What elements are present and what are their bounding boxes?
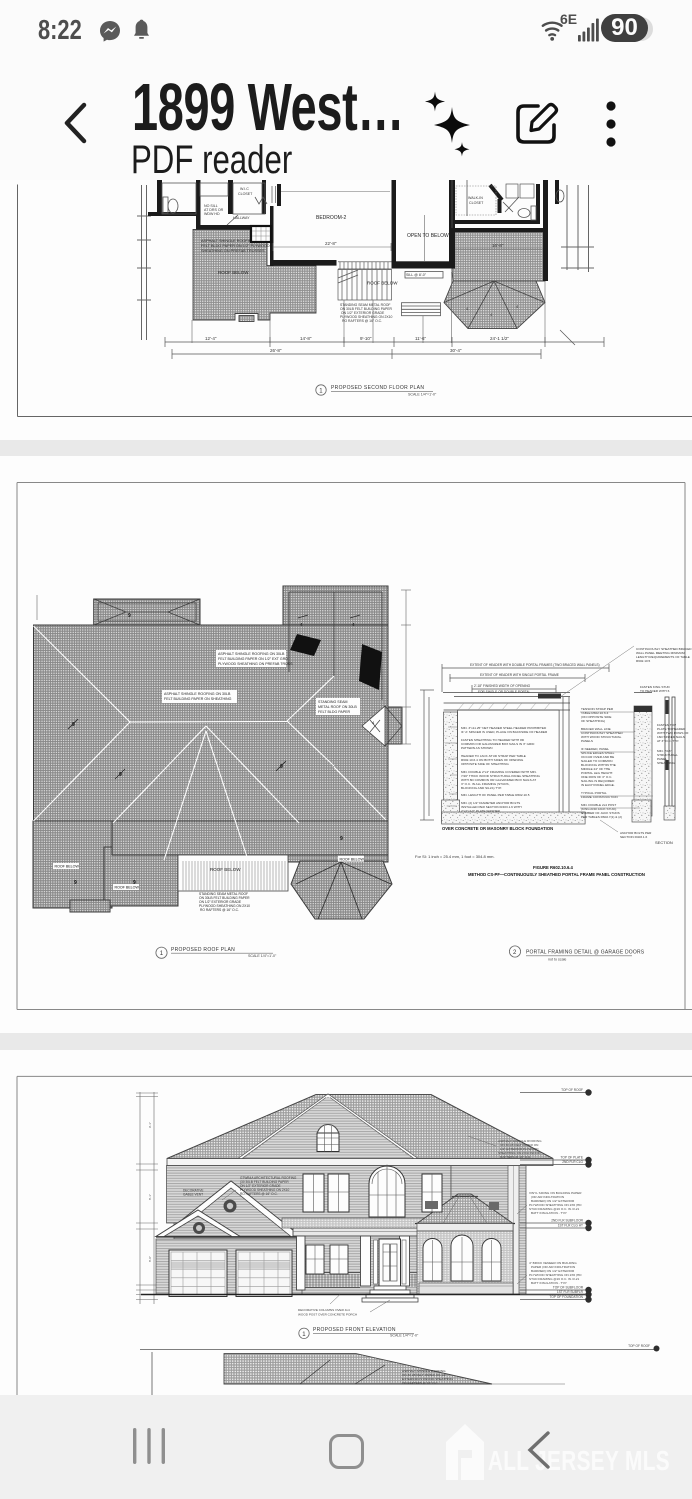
svg-text:9'-10": 9'-10" (360, 336, 372, 341)
svg-text:BATT INSULATION - TYP: BATT INSULATION - TYP (531, 1281, 567, 1285)
svg-text:FRAME CONSTRUCTION: FRAME CONSTRUCTION (581, 795, 618, 799)
svg-text:CLOSET: CLOSET (469, 201, 484, 205)
svg-text:IF 'A' SPACER IS USED, PLACE O: IF 'A' SPACER IS USED, PLACE ON BACKSIDE… (461, 730, 548, 734)
svg-text:9: 9 (133, 880, 136, 886)
svg-text:TOP OF ROOF: TOP OF ROOF (628, 1344, 650, 1348)
svg-text:PORTAL FRAMING DETAIL @ GARAGE: PORTAL FRAMING DETAIL @ GARAGE DOORS (526, 950, 645, 956)
svg-text:W.I.C: W.I.C (240, 187, 249, 191)
svg-text:FELT BLDG PAPER ON 1/2" PLYWOO: FELT BLDG PAPER ON 1/2" PLYWOOD (201, 244, 270, 248)
svg-text:14'-8": 14'-8" (300, 336, 312, 341)
svg-text:8'-1": 8'-1" (148, 1194, 152, 1200)
svg-text:WDW HD: WDW HD (204, 212, 220, 216)
svg-text:TOP OF SUBFLOOR: TOP OF SUBFLOOR (553, 1286, 584, 1290)
svg-text:ASPHALT SHINGLE ROOFING ON 30L: ASPHALT SHINGLE ROOFING ON 30LB (218, 652, 285, 656)
svg-text:AT 3" O.C. TYP.: AT 3" O.C. TYP. (657, 739, 679, 743)
svg-text:BEDROOM-2: BEDROOM-2 (316, 215, 347, 221)
svg-text:WALK-IN: WALK-IN (468, 196, 483, 200)
svg-text:METHOD CS-PF—CONTINUOUSLY SHEA: METHOD CS-PF—CONTINUOUSLY SHEATHED PORTA… (468, 872, 645, 877)
svg-text:9'-1": 9'-1" (148, 1122, 152, 1128)
svg-text:26'-8": 26'-8" (270, 348, 282, 353)
svg-text:R602.10.5: R602.10.5 (636, 659, 651, 663)
svg-text:SCALE 1/4"=1'-0": SCALE 1/4"=1'-0" (248, 954, 277, 958)
svg-text:PROPOSED FRONT ELEVATION: PROPOSED FRONT ELEVATION (313, 1327, 396, 1333)
svg-text:SECTION R403.1.6: SECTION R403.1.6 (620, 835, 647, 839)
svg-text:HALLWAY: HALLWAY (233, 216, 250, 220)
svg-text:12'-4": 12'-4" (205, 336, 217, 341)
svg-text:DECORATIVE COLUMNS OVER 4x4: DECORATIVE COLUMNS OVER 4x4 (298, 1308, 350, 1312)
svg-text:EXTENT OF HEADER WITH SINGLE P: EXTENT OF HEADER WITH SINGLE PORTAL FRAM… (480, 673, 559, 677)
svg-text:PER TABLES R602.7(1) & (2): PER TABLES R602.7(1) & (2) (581, 815, 622, 819)
svg-text:EXTENT OF HEADER WITH DOUBLE P: EXTENT OF HEADER WITH DOUBLE PORTAL FRAM… (470, 663, 600, 667)
svg-text:9: 9 (128, 613, 131, 619)
svg-text:OF SHEATHING): OF SHEATHING) (581, 719, 605, 723)
svg-text:MIN. LENGTH OF PANEL PER TABLE: MIN. LENGTH OF PANEL PER TABLE R602.10.5 (461, 793, 530, 797)
svg-text:2"x2"x1/2" PLATE WASHER: 2"x2"x1/2" PLATE WASHER (461, 809, 501, 813)
svg-text:RO RAFTERS @ 16" O.C.: RO RAFTERS @ 16" O.C. (200, 908, 239, 912)
svg-text:ROOF BELOW: ROOF BELOW (115, 886, 140, 890)
svg-text:SHEATHING ON PREFAB TRUSSES: SHEATHING ON PREFAB TRUSSES (201, 249, 265, 253)
svg-text:ROOF BELOW: ROOF BELOW (210, 867, 241, 872)
svg-text:OPEN TO BELOW: OPEN TO BELOW (407, 233, 449, 239)
svg-text:STANDING SEAM: STANDING SEAM (318, 700, 348, 704)
svg-text:PROPOSED SECOND FLOOR PLAN: PROPOSED SECOND FLOOR PLAN (331, 385, 424, 391)
svg-text:ROOF BELOW: ROOF BELOW (340, 858, 365, 862)
svg-text:1ST FLR CLG HT: 1ST FLR CLG HT (558, 1224, 583, 1228)
svg-text:1ST FLR SUBFLR: 1ST FLR SUBFLR (557, 1290, 584, 1294)
svg-text:SILL @ 8'-0": SILL @ 8'-0" (406, 273, 427, 277)
svg-text:PATTERN AS SHOWN: PATTERN AS SHOWN (461, 746, 493, 750)
svg-text:TO HEADER WITH 6: TO HEADER WITH 6 (640, 689, 670, 693)
svg-text:FIGURE R602.10.6.4: FIGURE R602.10.6.4 (533, 865, 573, 870)
svg-text:PANELS: PANELS (581, 739, 593, 743)
svg-text:BATT INSULATION - TYP: BATT INSULATION - TYP (531, 1211, 567, 1215)
svg-text:FOR SINGLE OR DOUBLE PORTAL: FOR SINGLE OR DOUBLE PORTAL (478, 690, 531, 694)
svg-text:8'-0": 8'-0" (148, 1256, 152, 1262)
svg-text:2: 2 (513, 950, 517, 956)
svg-text:GABLE VENT: GABLE VENT (183, 1193, 203, 1197)
svg-text:TOP OF FOUNDATION: TOP OF FOUNDATION (550, 1295, 584, 1299)
svg-text:SHEATHING: SHEATHING (657, 761, 675, 765)
svg-text:TOP OF ROOF: TOP OF ROOF (561, 1088, 583, 1092)
svg-text:METAL ROOF ON 30LB: METAL ROOF ON 30LB (318, 705, 357, 709)
svg-text:2ND FLR CLG: 2ND FLR CLG (562, 1160, 583, 1164)
svg-text:OVER CONCRETE OR MASONRY BLOCK: OVER CONCRETE OR MASONRY BLOCK FOUNDATIO… (442, 826, 553, 831)
svg-text:RAFTERS @ 16" O.C.: RAFTERS @ 16" O.C. (500, 1155, 531, 1159)
svg-text:FELT BLDG PAPER: FELT BLDG PAPER (318, 710, 351, 714)
svg-text:ALL JERSEY MLS: ALL JERSEY MLS (488, 1446, 670, 1476)
svg-text:1: 1 (160, 951, 164, 957)
svg-text:ROOF BELOW: ROOF BELOW (218, 270, 249, 275)
svg-text:CLOSET: CLOSET (238, 192, 253, 196)
svg-text:9: 9 (340, 836, 343, 842)
svg-text:24'-1 1/2": 24'-1 1/2" (490, 336, 509, 341)
svg-text:BLOCKING AND SILLS) TYP.: BLOCKING AND SILLS) TYP. (461, 786, 502, 790)
svg-text:ON RAFTERS @ 16" O.C.: ON RAFTERS @ 16" O.C. (402, 1381, 439, 1385)
svg-text:not to scale: not to scale (548, 958, 566, 962)
svg-text:ROOF BELOW: ROOF BELOW (367, 281, 398, 286)
svg-text:PROPOSED ROOF PLAN: PROPOSED ROOF PLAN (171, 947, 235, 953)
svg-text:16'-8": 16'-8" (492, 243, 504, 248)
svg-text:30'-4": 30'-4" (450, 348, 462, 353)
svg-text:9: 9 (74, 880, 77, 886)
svg-text:1: 1 (302, 1332, 306, 1338)
svg-text:SCALE 1/4"=1'-0": SCALE 1/4"=1'-0" (408, 393, 437, 397)
svg-text:ASPHALT SHINGLE ROOFING ON 30L: ASPHALT SHINGLE ROOFING ON 30LB (164, 692, 231, 696)
svg-text:TOP OF PLATE: TOP OF PLATE (561, 1156, 584, 1160)
svg-text:2'-18" FINISHED WIDTH OF OPENI: 2'-18" FINISHED WIDTH OF OPENING (474, 684, 531, 688)
svg-text:ROOF BELOW: ROOF BELOW (55, 865, 80, 869)
svg-text:IN EACH PANEL EDGE.: IN EACH PANEL EDGE. (581, 783, 615, 787)
svg-text:2ND FLR SUBFLOOR: 2ND FLR SUBFLOOR (551, 1219, 583, 1223)
svg-text:FELT BUILDING PAPER ON 1/2" EX: FELT BUILDING PAPER ON 1/2" EXT GRD (218, 657, 288, 661)
svg-text:22'-8": 22'-8" (325, 241, 337, 246)
svg-text:SCALE 1/4"=1'-0": SCALE 1/4"=1'-0" (390, 1334, 419, 1338)
svg-text:PLYWOOD SHEATHING ON PREFAB TR: PLYWOOD SHEATHING ON PREFAB TRUSS (218, 662, 293, 666)
svg-text:11'-6": 11'-6" (415, 336, 427, 341)
svg-text:For SI: 1 inch = 25.4 mm, 1 f: For SI: 1 inch = 25.4 mm, 1 foot = 304.8… (415, 854, 495, 859)
svg-text:OPPOSITE SIDE OF SHEATHING: OPPOSITE SIDE OF SHEATHING (461, 762, 509, 766)
svg-text:FELT BUILDING PAPER ON SHEATHI: FELT BUILDING PAPER ON SHEATHING (164, 697, 232, 701)
svg-text:RO RAFTERS @ 16" O.C.: RO RAFTERS @ 16" O.C. (240, 1192, 278, 1196)
svg-text:WOOD POST OVER CONCRETE PORCH: WOOD POST OVER CONCRETE PORCH (298, 1313, 357, 1317)
svg-text:1: 1 (319, 389, 323, 395)
svg-text:SECTION: SECTION (655, 840, 673, 845)
svg-text:RO RAFTERS @ 16" O.C.: RO RAFTERS @ 16" O.C. (342, 319, 382, 323)
